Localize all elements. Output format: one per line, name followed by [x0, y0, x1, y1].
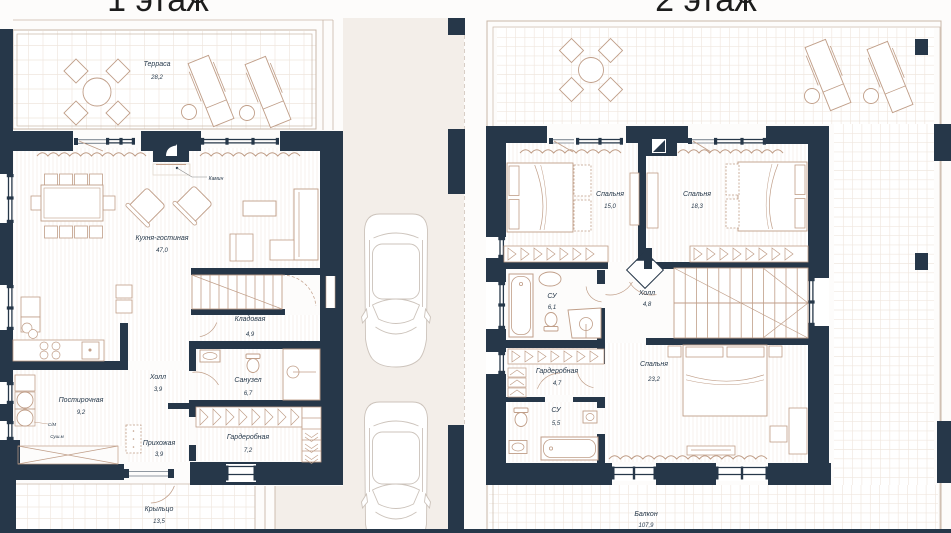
- svg-text:13,5: 13,5: [153, 519, 165, 525]
- svg-text:1 этаж: 1 этаж: [107, 0, 209, 19]
- svg-text:9,2: 9,2: [77, 410, 86, 416]
- svg-text:Спальня: Спальня: [596, 191, 624, 198]
- svg-text:Кладовая: Кладовая: [235, 315, 266, 323]
- svg-text:С/М: С/М: [48, 422, 57, 427]
- svg-text:7,2: 7,2: [244, 448, 253, 454]
- svg-text:107,9: 107,9: [638, 523, 654, 529]
- svg-text:СУ: СУ: [551, 407, 562, 414]
- svg-text:3,9: 3,9: [155, 452, 164, 458]
- svg-text:23,2: 23,2: [647, 377, 660, 383]
- svg-text:Прихожая: Прихожая: [143, 440, 176, 447]
- svg-text:Спальня: Спальня: [683, 191, 711, 198]
- svg-text:Гардеробная: Гардеробная: [536, 367, 579, 375]
- svg-text:Гардеробная: Гардеробная: [227, 433, 270, 441]
- svg-text:Терраса: Терраса: [143, 61, 170, 68]
- svg-text:Суш.м: Суш.м: [50, 434, 64, 439]
- svg-text:Крыльцо: Крыльцо: [145, 506, 174, 513]
- svg-text:15,0: 15,0: [604, 204, 616, 210]
- svg-text:Санузел: Санузел: [234, 377, 261, 384]
- svg-text:5,5: 5,5: [552, 421, 561, 427]
- svg-text:28,2: 28,2: [150, 75, 163, 81]
- svg-text:Камин: Камин: [209, 176, 224, 182]
- svg-text:Холл: Холл: [638, 290, 655, 297]
- svg-text:47,0: 47,0: [156, 248, 168, 254]
- svg-text:6,7: 6,7: [244, 391, 253, 397]
- svg-text:СУ: СУ: [547, 293, 558, 300]
- svg-text:2 этаж: 2 этаж: [655, 0, 757, 19]
- svg-text:3,9: 3,9: [154, 387, 163, 393]
- svg-text:Холл: Холл: [149, 374, 166, 381]
- svg-text:4,8: 4,8: [643, 302, 652, 308]
- svg-text:Постирочная: Постирочная: [59, 397, 104, 404]
- svg-text:4,9: 4,9: [246, 332, 255, 338]
- svg-text:Кухня-гостиная: Кухня-гостиная: [136, 235, 189, 242]
- svg-text:18,3: 18,3: [691, 204, 703, 210]
- svg-text:4,7: 4,7: [553, 381, 562, 387]
- svg-text:Балкон: Балкон: [634, 511, 658, 518]
- svg-text:Спальня: Спальня: [640, 361, 668, 368]
- svg-text:6,1: 6,1: [548, 305, 556, 311]
